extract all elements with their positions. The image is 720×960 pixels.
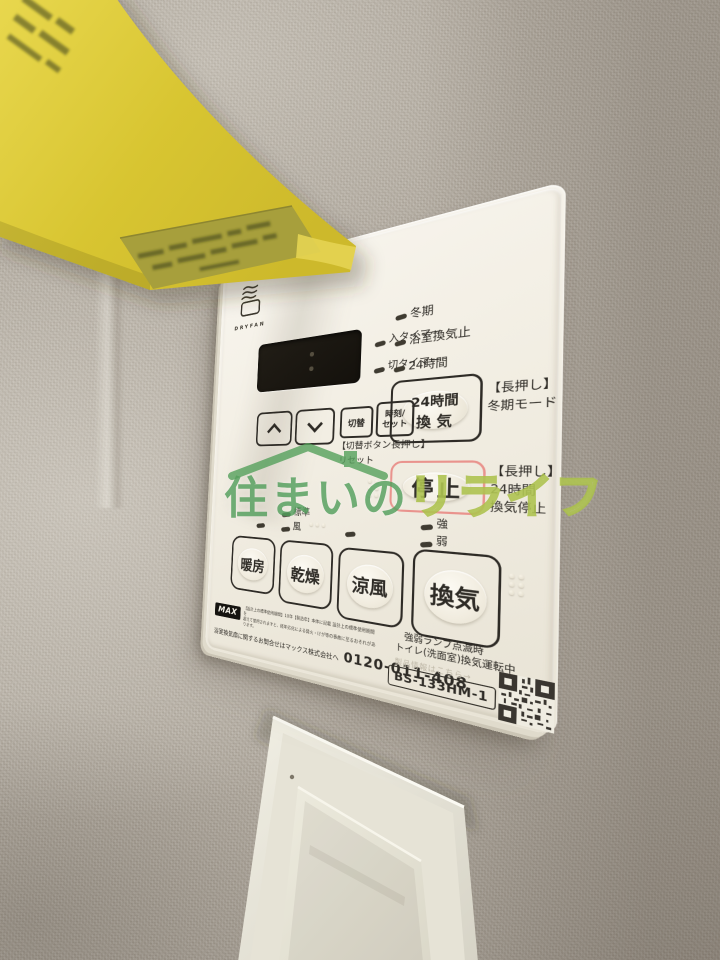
yellow-masking-tape — [0, 0, 720, 960]
photo-bathroom-wall: DRYFAN 入タイマー 切タイマー 冬期 浴室換気止 24時間 24時間 換気… — [0, 0, 720, 960]
